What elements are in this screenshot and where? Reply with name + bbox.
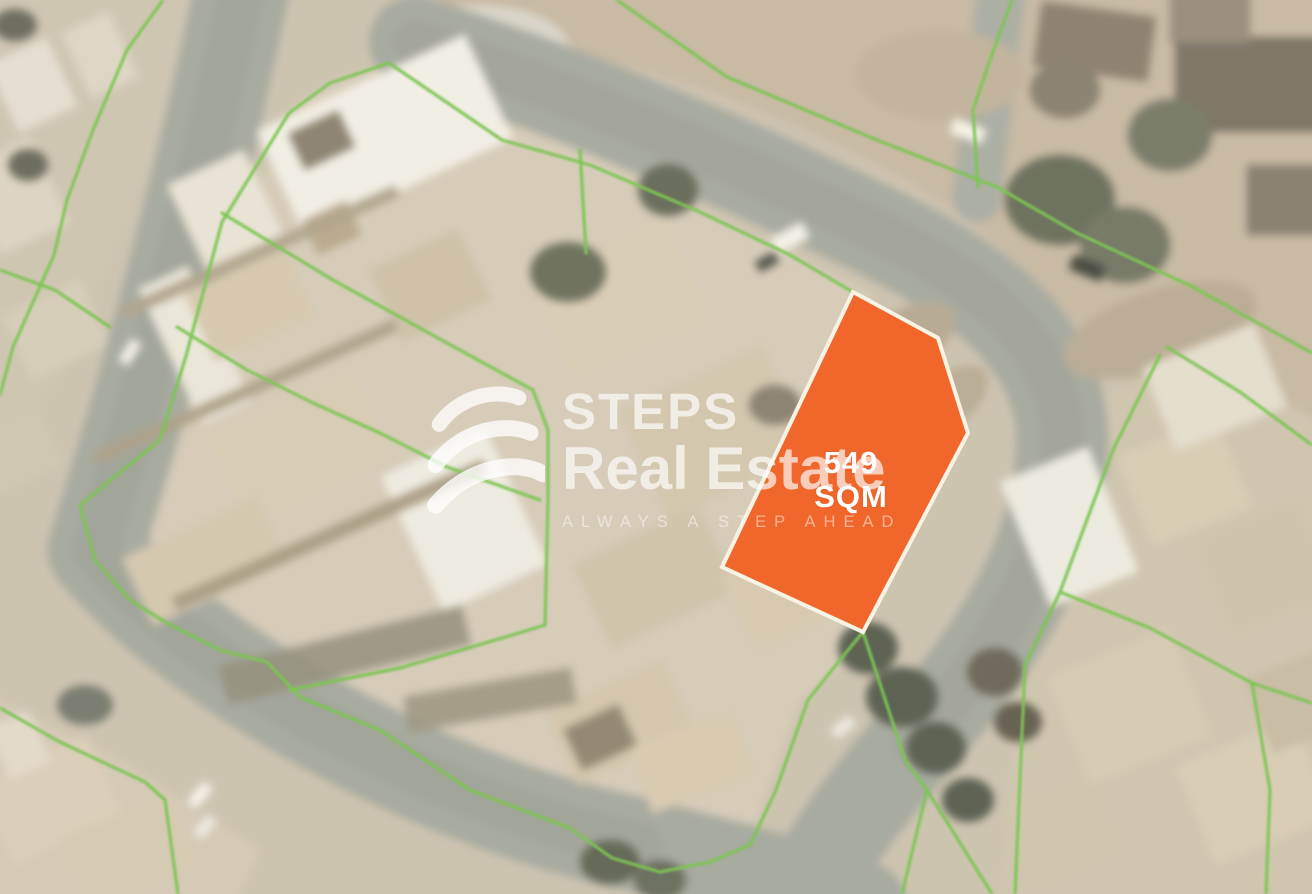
logo-swoosh-top: [437, 391, 521, 424]
watermark-brand-realestate: Real Estate: [562, 439, 901, 499]
watermark-tagline: ALWAYS A STEP AHEAD: [562, 513, 901, 532]
steps-logo-icon: [420, 382, 545, 517]
watermark: STEPS Real Estate ALWAYS A STEP AHEAD: [420, 380, 940, 550]
satellite-map: 549 SQM STEPS Real Estate ALWAYS A STEP …: [0, 0, 1312, 894]
watermark-brand-steps: STEPS: [562, 386, 901, 437]
watermark-text: STEPS Real Estate ALWAYS A STEP AHEAD: [562, 386, 901, 532]
logo-swoosh-bottom: [432, 463, 545, 505]
